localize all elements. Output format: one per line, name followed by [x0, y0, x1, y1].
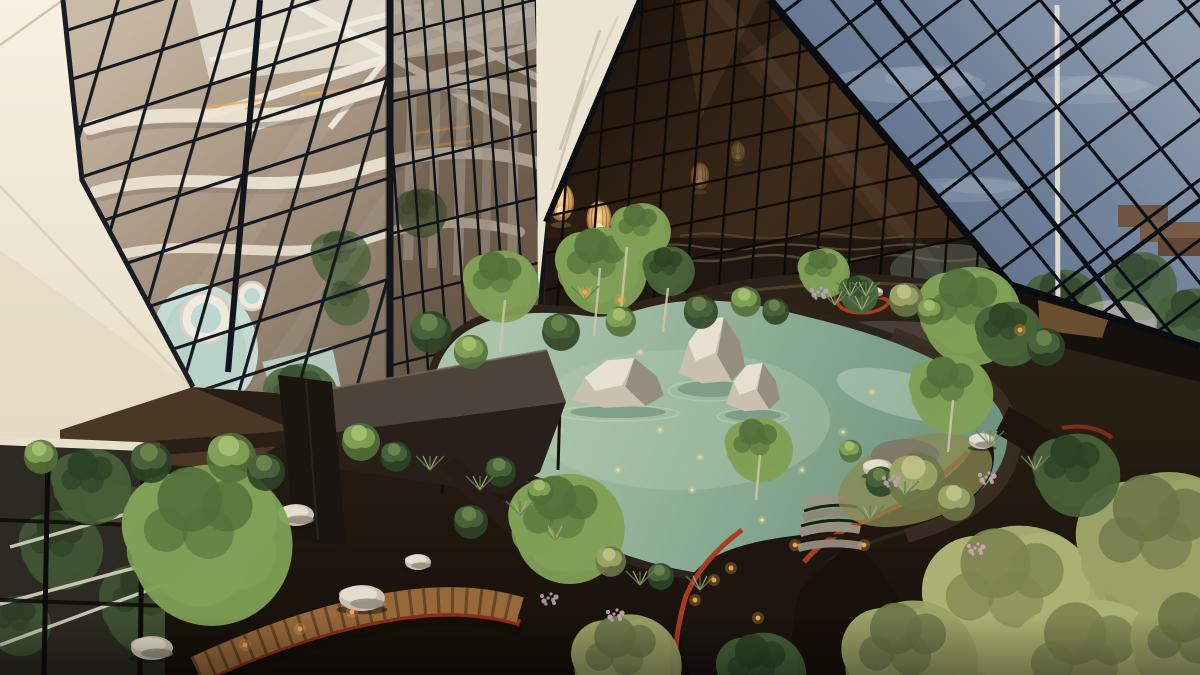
- flower: [823, 288, 828, 293]
- bush-foliage: [218, 436, 239, 457]
- flower: [549, 592, 552, 595]
- bush: [410, 311, 452, 353]
- flower: [816, 290, 819, 293]
- tree-foliage: [1043, 456, 1066, 479]
- flower: [978, 473, 982, 477]
- bush: [24, 440, 58, 474]
- flower: [546, 596, 549, 599]
- rock-waterline: [570, 406, 666, 418]
- sparkle: [690, 488, 694, 492]
- flower: [891, 474, 894, 477]
- flower: [552, 601, 556, 605]
- bush: [454, 335, 488, 369]
- tree-foliage: [734, 435, 752, 453]
- tree-foliage: [946, 573, 994, 621]
- bush-foliage: [462, 337, 476, 351]
- flower: [976, 542, 979, 545]
- atrium-garden-rendering: [0, 0, 1200, 675]
- tree-foliage: [632, 218, 650, 236]
- bush-foliage: [1036, 330, 1052, 346]
- sparkle: [841, 430, 845, 434]
- bush: [1027, 328, 1065, 366]
- flower: [979, 551, 983, 555]
- bottom-vignette: [0, 615, 1200, 675]
- tree-foliage: [749, 435, 769, 455]
- tree-foliage: [588, 250, 616, 278]
- boulder-shade: [287, 515, 314, 524]
- bush: [606, 306, 636, 336]
- path-light: [862, 543, 867, 548]
- flower: [895, 476, 900, 481]
- bush-foliage: [845, 441, 855, 451]
- bush-foliage: [388, 443, 401, 456]
- bush: [381, 441, 411, 471]
- flower: [810, 288, 814, 292]
- flower: [990, 480, 994, 484]
- flower: [540, 594, 544, 598]
- architectural-render-stage: [0, 0, 1200, 675]
- sparkle: [698, 455, 702, 459]
- sparkle: [616, 468, 620, 472]
- tree-foliage: [473, 270, 493, 290]
- bush-foliage: [946, 485, 962, 501]
- bush: [731, 286, 761, 316]
- bush-foliage: [420, 314, 438, 332]
- bush-foliage: [769, 300, 780, 311]
- bush: [647, 563, 674, 590]
- tree-foliage: [80, 469, 104, 493]
- tree-foliage: [618, 218, 634, 234]
- tree-foliage: [490, 270, 513, 293]
- bush-foliage: [897, 285, 911, 299]
- bush: [917, 298, 944, 325]
- path-light: [583, 290, 588, 295]
- tree-foliage: [1099, 517, 1145, 563]
- flower: [982, 481, 985, 484]
- bush-foliage: [493, 458, 506, 471]
- flower: [980, 544, 985, 549]
- bush-foliage: [603, 548, 616, 561]
- flower: [544, 602, 547, 605]
- bush: [247, 453, 285, 491]
- flower: [987, 471, 990, 474]
- flower: [615, 608, 618, 611]
- bush-foliage: [256, 455, 272, 471]
- bush-foliage: [551, 315, 567, 331]
- flower: [991, 473, 996, 478]
- flower: [984, 475, 987, 478]
- path-light: [729, 566, 734, 571]
- bush-foliage: [924, 300, 935, 311]
- path-light: [1018, 328, 1023, 333]
- bush: [839, 440, 862, 463]
- bush: [684, 295, 718, 329]
- tree-foliage: [649, 260, 663, 274]
- bush-foliage: [462, 507, 476, 521]
- flower: [967, 544, 971, 548]
- bush: [342, 423, 380, 461]
- flower: [886, 484, 889, 487]
- path-light: [712, 578, 717, 583]
- flower: [882, 476, 886, 480]
- bush: [937, 483, 975, 521]
- bush-foliage: [738, 288, 751, 301]
- flower: [814, 296, 817, 299]
- tree-foliage: [144, 508, 188, 552]
- path-light: [793, 543, 798, 548]
- sparkle: [638, 350, 642, 354]
- bush-foliage: [140, 444, 158, 462]
- tree-foliage: [984, 319, 1002, 337]
- tree-foliage: [183, 508, 234, 559]
- path-light: [350, 610, 355, 615]
- flower: [819, 286, 822, 289]
- bush: [542, 313, 580, 351]
- flower: [619, 610, 624, 615]
- path-light: [693, 598, 698, 603]
- flower: [606, 610, 610, 614]
- bush: [596, 546, 626, 576]
- bush: [130, 441, 172, 483]
- flower: [971, 552, 974, 555]
- tree-foliage: [939, 377, 964, 402]
- tree-foliage: [61, 469, 82, 490]
- bush-foliage: [654, 565, 665, 576]
- bush-foliage: [351, 425, 367, 441]
- bush-foliage: [902, 456, 926, 480]
- flower: [888, 478, 891, 481]
- tree-foliage: [920, 377, 942, 399]
- bush-foliage: [613, 308, 626, 321]
- bush-foliage: [692, 297, 706, 311]
- bush: [762, 298, 789, 325]
- boulder-shade: [411, 562, 431, 568]
- flower: [894, 483, 898, 487]
- bush: [527, 478, 554, 505]
- sparkle: [760, 518, 764, 522]
- flower: [553, 594, 558, 599]
- sparkle: [870, 390, 874, 394]
- tree-foliage: [804, 262, 818, 276]
- bush-foliage: [534, 480, 545, 491]
- tree-foliage: [1139, 517, 1192, 570]
- tree-foliage: [567, 250, 591, 274]
- bush-foliage: [32, 442, 46, 456]
- flower: [973, 546, 976, 549]
- bush: [486, 456, 516, 486]
- tree-foliage: [816, 262, 832, 278]
- tree-foliage: [1064, 456, 1090, 482]
- flower: [822, 295, 826, 299]
- bush: [454, 505, 488, 539]
- path-light: [618, 298, 623, 303]
- sparkle: [658, 428, 662, 432]
- tree-foliage: [661, 260, 677, 276]
- sparkle: [800, 468, 804, 472]
